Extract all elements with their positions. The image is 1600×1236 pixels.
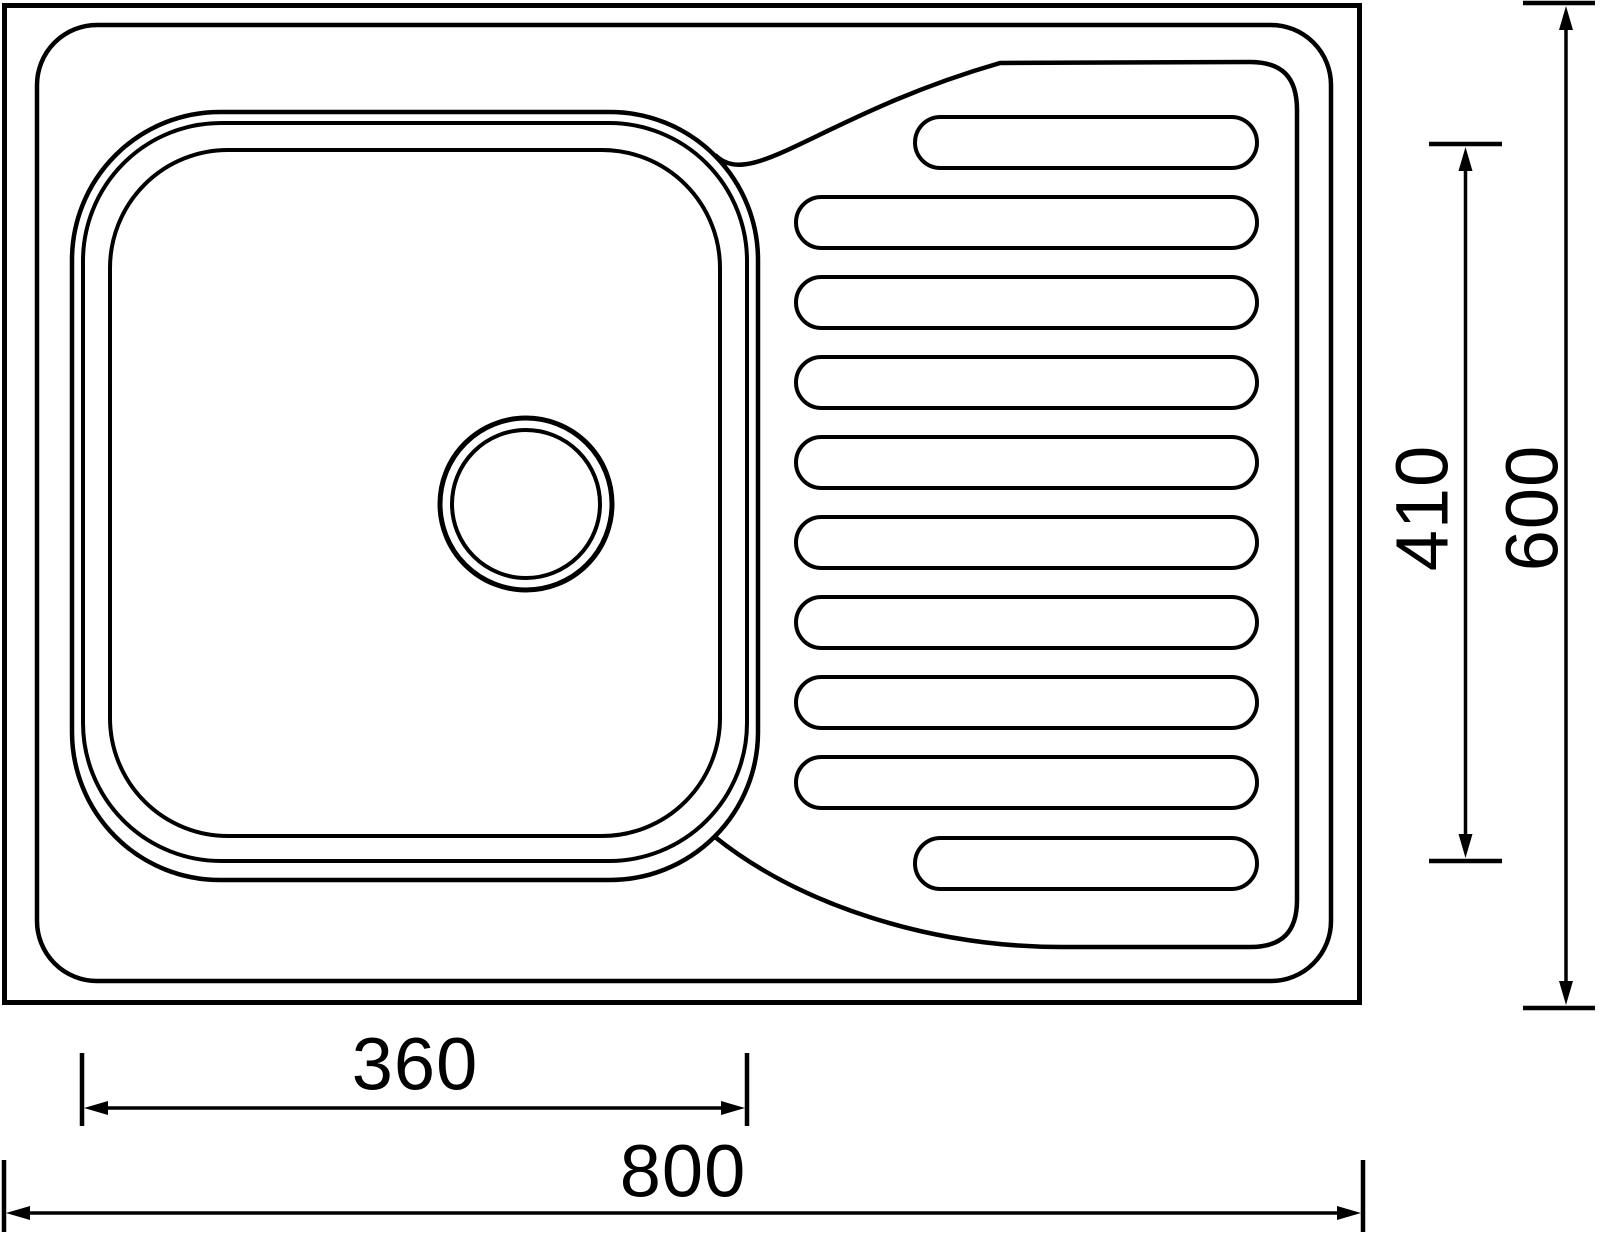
- drainer-rib: [796, 677, 1257, 728]
- drainer-rib: [796, 437, 1257, 488]
- bowl-inner-contour: [110, 150, 720, 836]
- drainer-rib: [796, 597, 1257, 648]
- dim-800-arrow-left: [6, 1206, 30, 1220]
- drain-outer-circle: [440, 418, 612, 590]
- dimension-drainer-span: 410: [1381, 144, 1502, 861]
- dim-410-label: 410: [1381, 445, 1464, 571]
- dim-360-label: 360: [352, 1023, 478, 1106]
- sink-outer-edge: [5, 6, 1360, 1003]
- dim-360-arrow-left: [84, 1101, 108, 1115]
- dim-410-arrow-up: [1459, 147, 1473, 171]
- dim-800-label: 800: [620, 1130, 746, 1213]
- drainer-outline: [715, 62, 1297, 947]
- dim-600-arrow-down: [1559, 981, 1573, 1005]
- dim-410-arrow-down: [1459, 834, 1473, 858]
- dim-800-arrow-right: [1337, 1206, 1361, 1220]
- drainer-rib: [796, 517, 1257, 568]
- drainer-rib: [796, 277, 1257, 328]
- dimension-bowl-width: 360: [82, 1023, 747, 1126]
- bowl-outer-contour: [72, 112, 758, 880]
- dimension-overall-depth: 600: [1491, 3, 1595, 1008]
- dim-600-arrow-up: [1559, 6, 1573, 30]
- sink-body: [5, 6, 1360, 1003]
- drainer-rib: [796, 197, 1257, 248]
- drainer-ribs: [796, 117, 1257, 889]
- drainer-rib: [796, 757, 1257, 808]
- drainer-rib: [915, 838, 1257, 889]
- dimension-overall-width: 800: [4, 1130, 1363, 1232]
- sink-drawing-svg: 360 800 410 600: [0, 0, 1600, 1236]
- drainer-rib: [796, 357, 1257, 408]
- dim-360-arrow-right: [721, 1101, 745, 1115]
- dim-600-label: 600: [1491, 445, 1574, 571]
- sink-technical-drawing: 360 800 410 600: [0, 0, 1600, 1236]
- drainer-rib: [915, 117, 1257, 168]
- bowl-middle-contour: [83, 123, 747, 861]
- drain-inner-circle: [452, 430, 600, 578]
